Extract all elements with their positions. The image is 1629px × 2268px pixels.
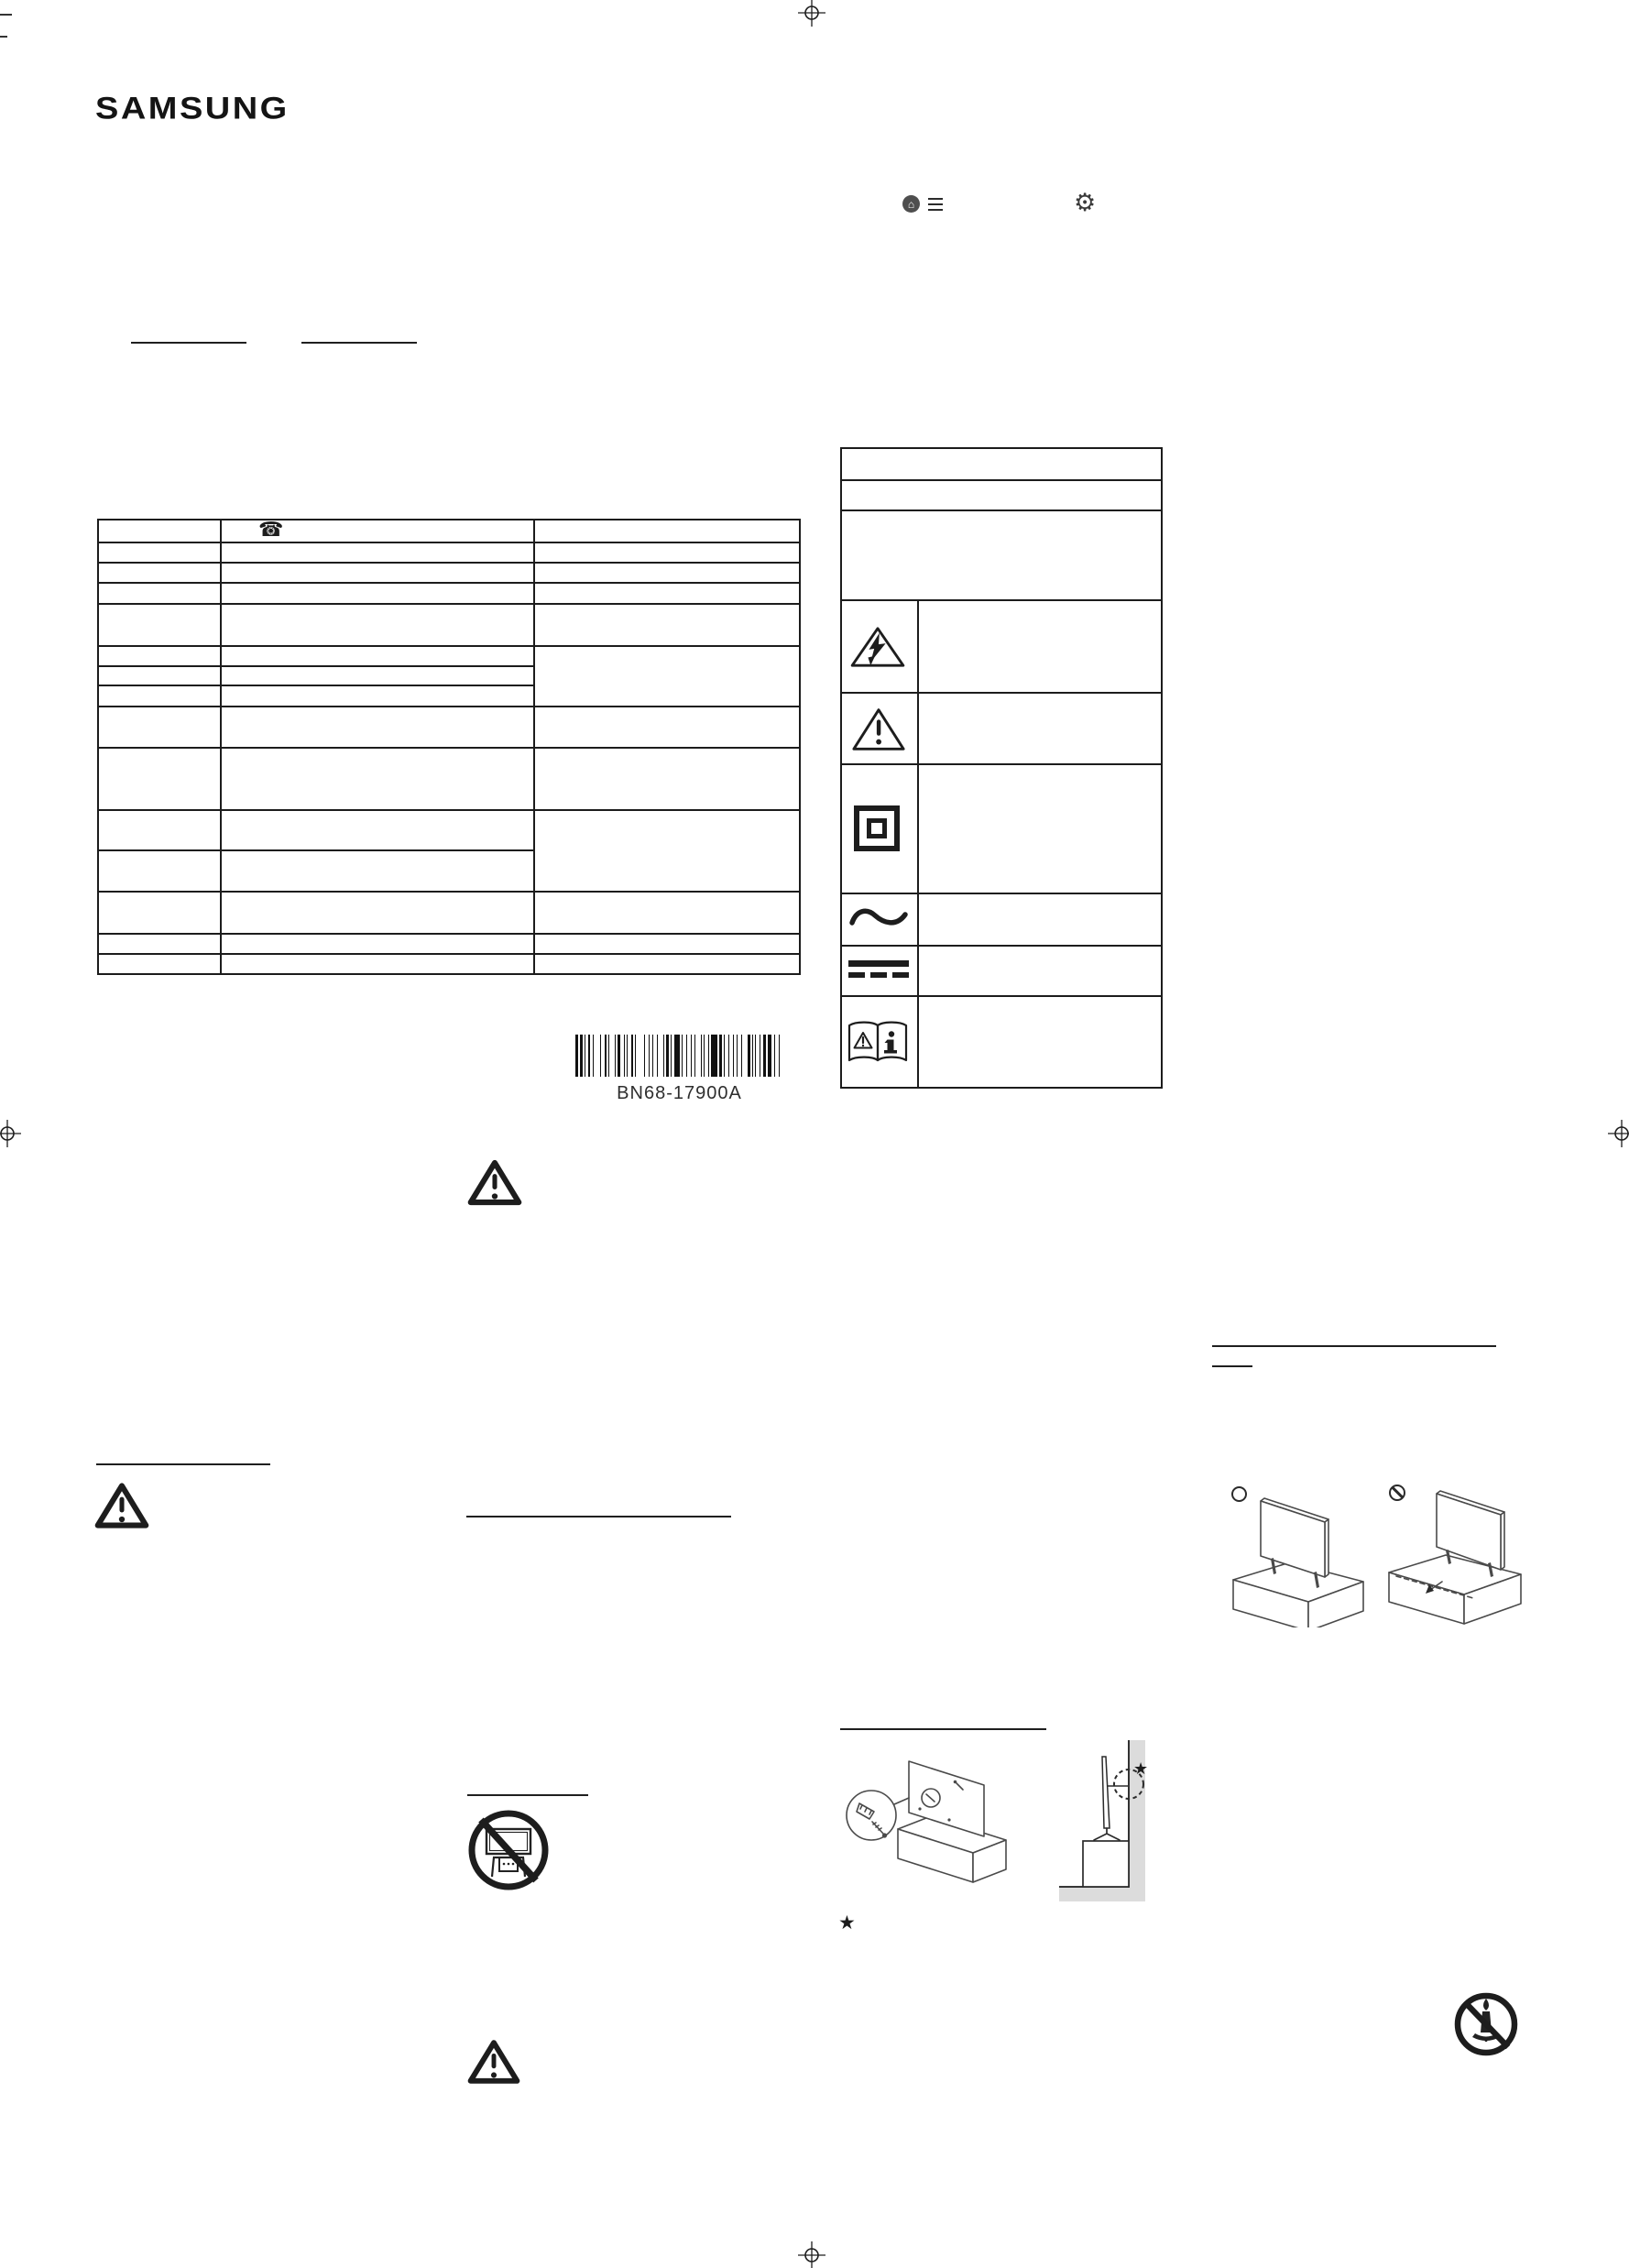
high-voltage-triangle-icon (849, 625, 906, 669)
tv-on-furniture-correct (1230, 1492, 1367, 1627)
table-hline (97, 603, 801, 605)
barcode-bar (580, 1035, 583, 1077)
print-tick (0, 36, 7, 38)
table-hline (97, 645, 801, 647)
barcode-bar (674, 1035, 680, 1077)
no-tv-on-unstable-furniture-icon (465, 1805, 552, 1895)
heading-rule-right-short (1212, 1365, 1252, 1367)
barcode-bar (605, 1035, 606, 1077)
manual-page: SAMSUNG ⌂ ⚙ ☎ (0, 0, 1629, 2268)
barcode-bar (719, 1035, 722, 1077)
barcode-bar (741, 1035, 742, 1077)
barcode-bar (737, 1035, 738, 1077)
star-marker: ★ (1133, 1760, 1148, 1777)
registration-mark (798, 2241, 825, 2268)
home-glyph: ⌂ (908, 199, 914, 210)
print-tick (0, 14, 12, 16)
barcode-label: BN68-17900A (575, 1083, 783, 1104)
barcode-bar (593, 1035, 594, 1077)
table-hline (97, 582, 801, 584)
table-hline (97, 747, 801, 749)
table-hline (97, 562, 801, 564)
barcode-bar (644, 1035, 645, 1077)
barcode-bar (649, 1035, 650, 1077)
table-hline (840, 447, 1163, 449)
barcode-bar (779, 1035, 780, 1077)
table-vline (840, 447, 842, 1089)
barcode-bar (635, 1035, 636, 1077)
table-hline (840, 893, 1163, 894)
table-hline (97, 891, 801, 893)
table-hline (840, 763, 1163, 765)
barcode-bar (763, 1035, 766, 1077)
warning-triangle-icon (467, 2036, 520, 2087)
barcode-bar (733, 1035, 734, 1077)
dc-voltage-icon (848, 960, 909, 979)
barcode-bar (663, 1035, 664, 1077)
barcode-bar (704, 1035, 705, 1077)
barcode-bar (600, 1035, 601, 1077)
barcode-bar (657, 1035, 658, 1077)
refer-to-manual-icon (846, 1019, 910, 1067)
table-hline (97, 665, 535, 667)
class-ii-insulation-icon (854, 805, 900, 851)
barcode-bar (652, 1035, 653, 1077)
heading-rule-right-long (1212, 1345, 1496, 1347)
registration-mark (0, 1120, 21, 1147)
barcode-bar (748, 1035, 750, 1077)
barcode-bar (701, 1035, 702, 1077)
barcode-bar (671, 1035, 672, 1077)
warning-triangle-icon (94, 1478, 149, 1533)
barcode-bar (691, 1035, 692, 1077)
table-hline (840, 1087, 1163, 1089)
table-hline (840, 509, 1163, 511)
barcode-bar (694, 1035, 695, 1077)
settings-gear-icon[interactable]: ⚙ (1074, 191, 1096, 215)
menu-icon[interactable] (928, 198, 943, 211)
barcode-bar (682, 1035, 683, 1077)
barcode-bar (615, 1035, 616, 1077)
table-hline (97, 973, 801, 975)
barcode-bar (618, 1035, 620, 1077)
table-vline (1161, 447, 1163, 1089)
table-hline (97, 542, 801, 543)
barcode-bar (585, 1035, 585, 1077)
contact-table: ☎ (97, 519, 801, 975)
table-vline (917, 599, 919, 1089)
phone-icon: ☎ (258, 520, 283, 540)
barcode-bar (686, 1035, 687, 1077)
registration-mark (798, 0, 825, 27)
home-icon[interactable]: ⌂ (902, 195, 920, 213)
barcode-bar (624, 1035, 625, 1077)
barcode-bar (774, 1035, 775, 1077)
barcode-bar (588, 1035, 591, 1077)
table-hline (97, 953, 801, 955)
heading-rule-stability (467, 1794, 588, 1796)
table-hline (840, 479, 1163, 481)
table-hline (97, 849, 535, 851)
table-hline (840, 995, 1163, 997)
heading-rule-warning-left (96, 1463, 270, 1465)
screw-install-figure (836, 1756, 1011, 1890)
heading-rule-install (840, 1728, 1046, 1730)
registration-mark (1608, 1120, 1629, 1147)
table-hline (840, 692, 1163, 694)
table-hline (97, 685, 535, 686)
star-footnote: ★ (838, 1913, 856, 1933)
barcode-bar (708, 1035, 709, 1077)
tv-on-furniture-wrong (1385, 1486, 1525, 1626)
barcode-bar (631, 1035, 632, 1077)
barcode-bar (755, 1035, 756, 1077)
caution-triangle-icon (851, 705, 906, 754)
table-hline (97, 706, 801, 707)
samsung-logo: SAMSUNG (95, 92, 290, 127)
heading-rule-middle (466, 1516, 731, 1517)
barcode-bar (768, 1035, 772, 1077)
table-hline (840, 599, 1163, 601)
barcode-bar (752, 1035, 753, 1077)
table-hline (840, 945, 1163, 947)
safety-symbols-table (840, 447, 1163, 1089)
barcode-bar (760, 1035, 760, 1077)
barcode-bar (724, 1035, 725, 1077)
barcode-bar (711, 1035, 716, 1077)
no-candle-icon (1452, 1988, 1520, 2061)
barcode-bar (627, 1035, 628, 1077)
table-hline (97, 933, 801, 935)
warning-triangle-icon (467, 1157, 522, 1208)
table-hline (97, 809, 801, 811)
barcode (575, 1035, 783, 1077)
table-hline (97, 519, 801, 520)
heading-rule-link-2 (301, 342, 417, 344)
barcode-bar (728, 1035, 729, 1077)
barcode-bar (666, 1035, 669, 1077)
barcode-bar (575, 1035, 578, 1077)
ac-voltage-icon (847, 904, 910, 930)
heading-rule-link-1 (131, 342, 246, 344)
barcode-bar (608, 1035, 609, 1077)
